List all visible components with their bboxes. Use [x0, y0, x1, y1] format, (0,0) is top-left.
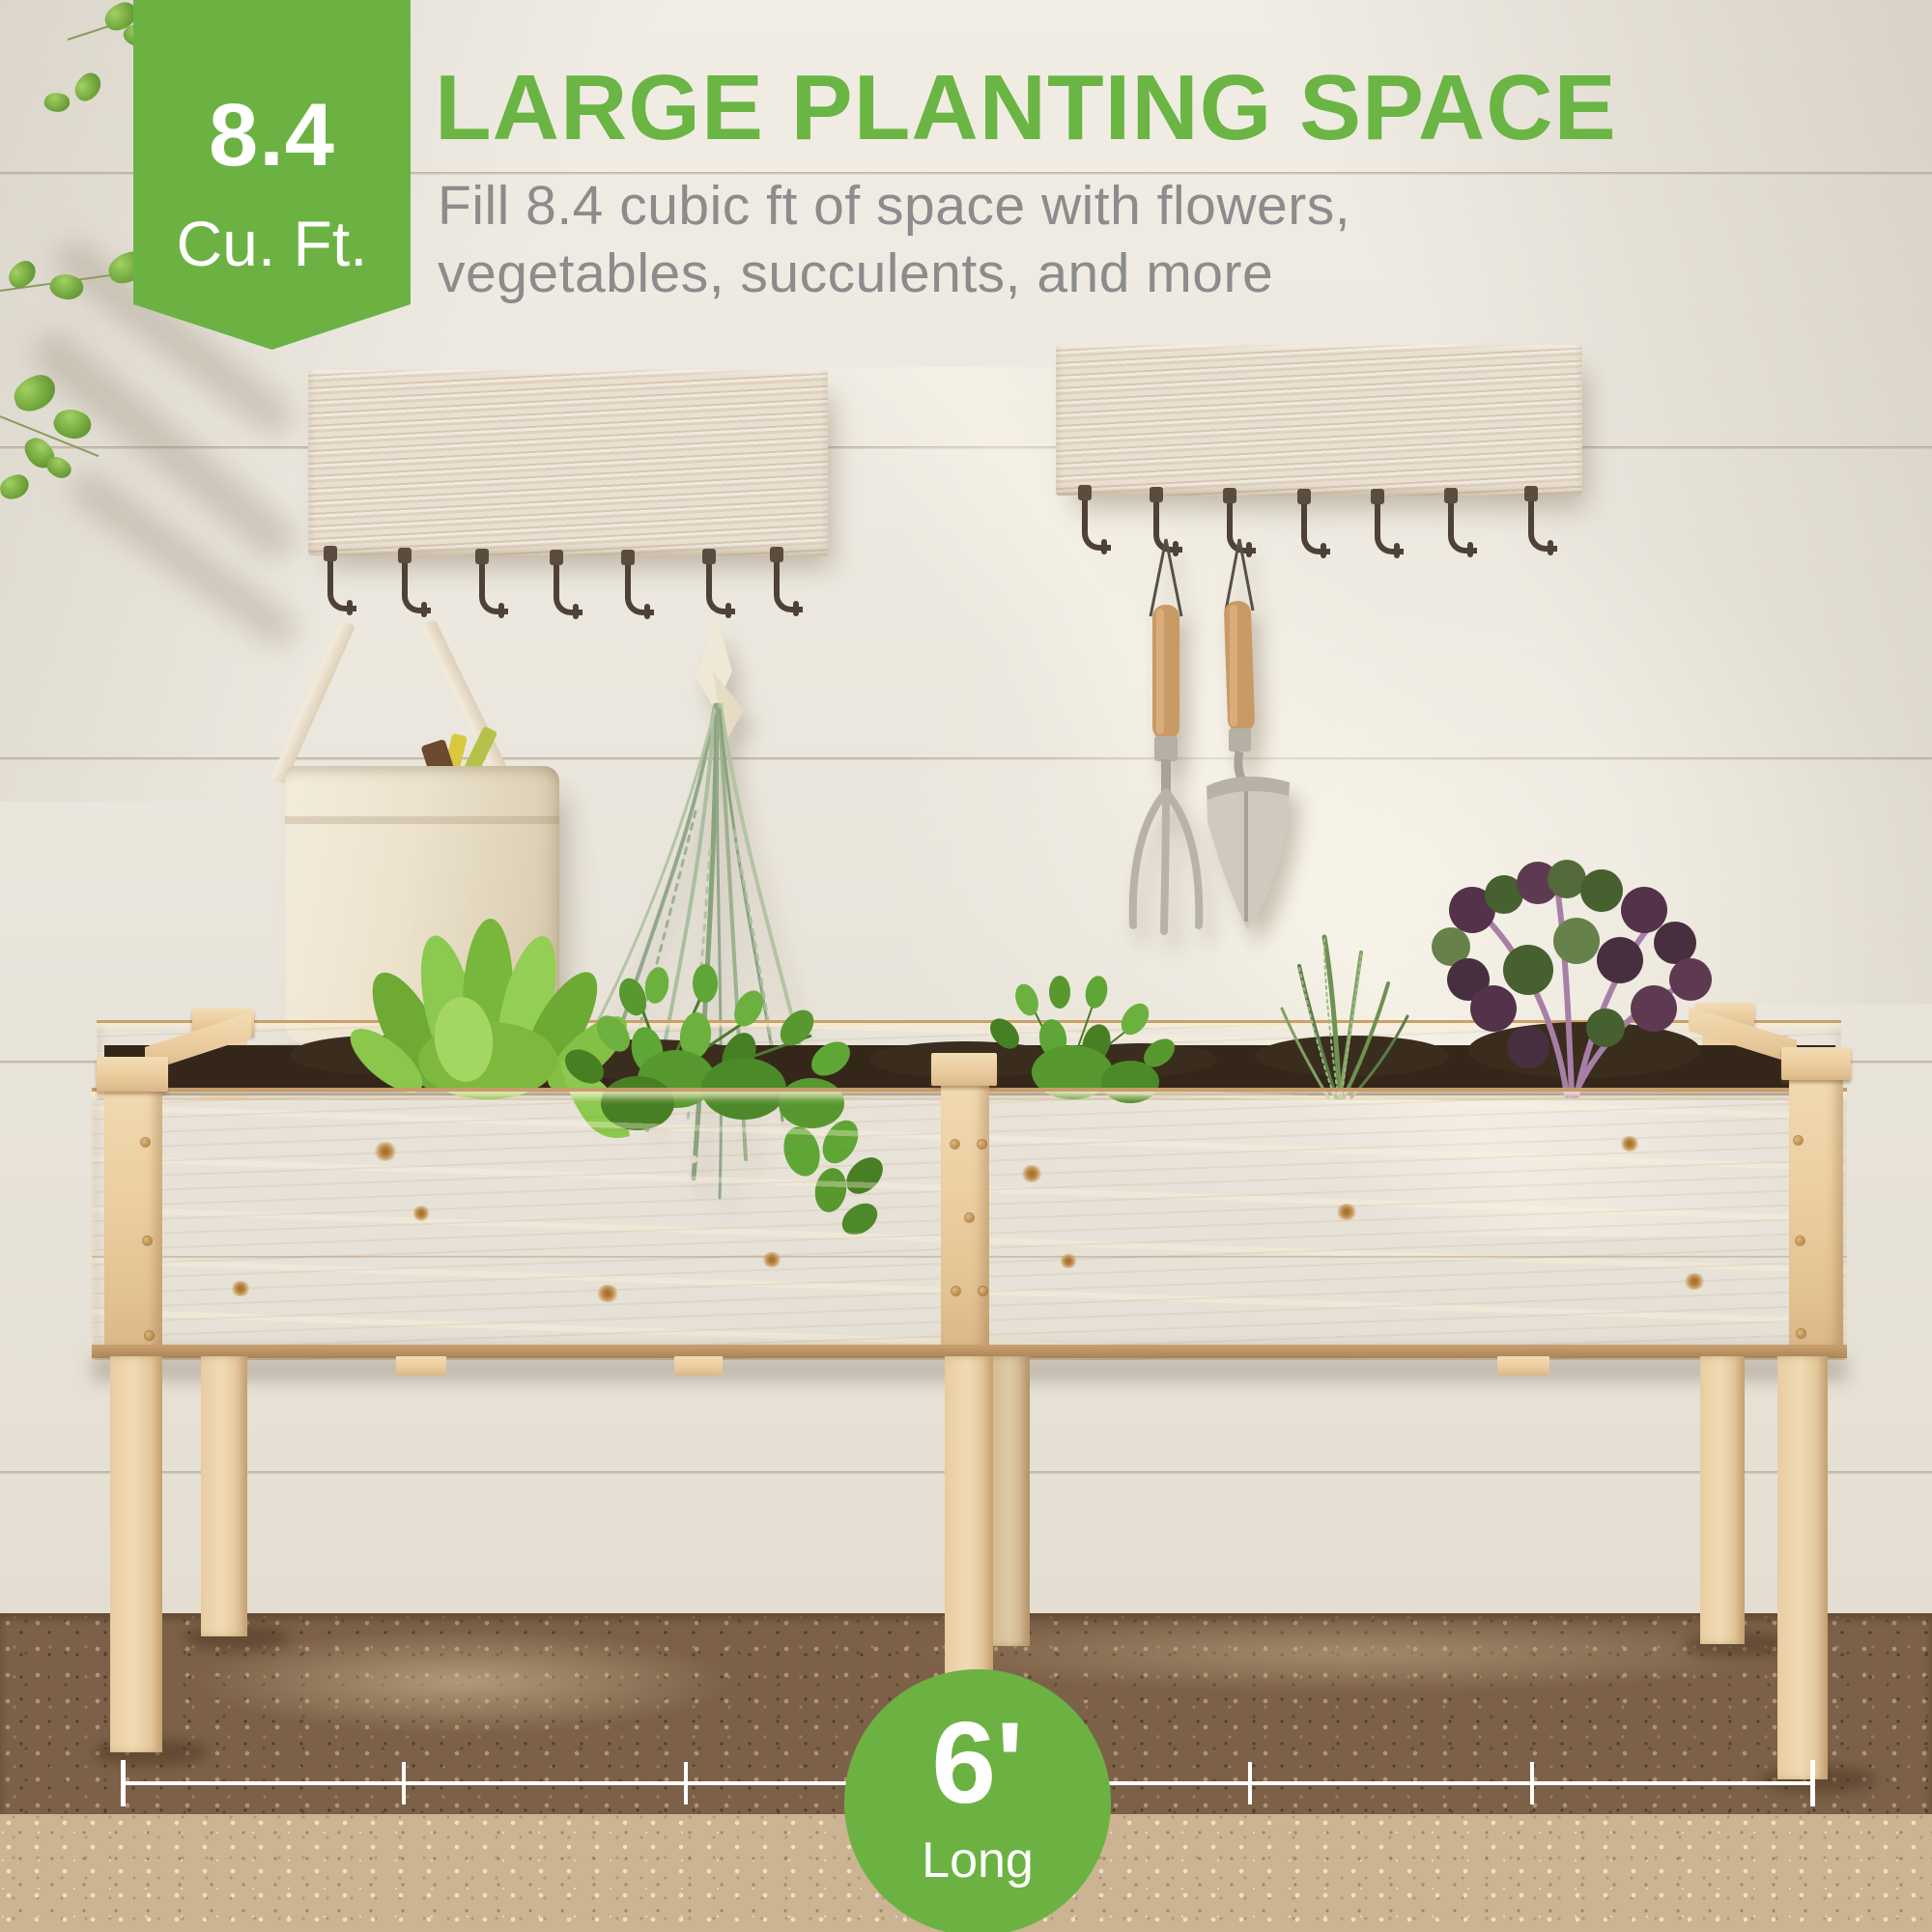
screw — [145, 1331, 154, 1340]
product-marketing-image: 8.4 Cu. Ft. LARGE PLANTING SPACE Fill 8.… — [0, 0, 1932, 1932]
screw — [1797, 1329, 1805, 1338]
planter-leg-front-left — [110, 1356, 162, 1752]
dimension-line-right — [1109, 1781, 1814, 1785]
planter-corner-post-cap-left — [97, 1057, 168, 1092]
wood-knot — [1020, 1165, 1043, 1182]
planter-middle-post — [941, 1055, 989, 1356]
screw — [979, 1287, 987, 1295]
planter-tab — [396, 1356, 446, 1376]
wood-knot — [1619, 1136, 1640, 1151]
subtitle-line-2: vegetables, succulents, and more — [438, 240, 1693, 307]
hook-icon — [327, 557, 356, 611]
wood-knot — [230, 1281, 251, 1296]
wood-knot — [595, 1285, 620, 1302]
planter-tab — [674, 1356, 723, 1376]
hook-icon — [774, 558, 803, 612]
screw — [143, 1236, 152, 1245]
screw — [1796, 1236, 1804, 1245]
hook-icon — [402, 559, 431, 613]
length-label: Long — [844, 1832, 1111, 1889]
screw — [1794, 1136, 1803, 1145]
dimension-tick — [684, 1762, 688, 1804]
wood-knot — [373, 1142, 398, 1161]
screw — [952, 1287, 960, 1295]
capacity-value: 8.4 — [133, 85, 411, 186]
screw — [965, 1213, 974, 1222]
headline: LARGE PLANTING SPACE — [435, 62, 1787, 155]
wood-knot — [1683, 1273, 1706, 1290]
purple-kale-plant — [1412, 854, 1741, 1110]
trowel-tool — [1193, 531, 1319, 947]
hook-icon — [1375, 500, 1404, 554]
capacity-unit: Cu. Ft. — [133, 207, 411, 280]
screw — [141, 1138, 150, 1147]
hook-icon — [1448, 499, 1477, 554]
hook-icon — [625, 561, 654, 615]
hook-icon — [479, 560, 508, 614]
dimension-tick — [1248, 1762, 1252, 1804]
wall-seam — [0, 446, 1932, 449]
hook-icon — [554, 561, 582, 615]
rosemary-plant — [1243, 923, 1436, 1107]
planter-leg-front-right — [1777, 1356, 1828, 1779]
wood-knot — [761, 1252, 782, 1267]
dimension-tick — [402, 1762, 406, 1804]
subtitle-line-1: Fill 8.4 cubic ft of space with flowers, — [438, 172, 1693, 240]
hook-icon — [706, 560, 735, 614]
capacity-badge: 8.4 Cu. Ft. — [133, 0, 411, 350]
planter-corner-post-right — [1789, 1049, 1843, 1356]
wall-hook-rack-right — [1056, 345, 1582, 496]
wood-knot — [1335, 1204, 1358, 1220]
wood-knot — [412, 1206, 431, 1221]
screw — [978, 1140, 986, 1149]
dimension-endcap-right — [1810, 1760, 1815, 1806]
planter-middle-post-cap — [931, 1053, 997, 1086]
planter-leg-back-middle — [993, 1356, 1030, 1646]
length-value: 6' — [844, 1696, 1111, 1830]
wall-hook-rack-left — [308, 370, 828, 555]
planter-corner-post-cap-right — [1781, 1047, 1851, 1080]
length-badge: 6' Long — [844, 1669, 1111, 1932]
planter-tab — [1497, 1356, 1549, 1376]
wood-knot — [1059, 1254, 1078, 1268]
hook-icon — [1528, 497, 1557, 552]
planter-leg-back-left — [201, 1356, 247, 1636]
hook-icon — [1082, 497, 1111, 551]
dimension-tick — [1530, 1762, 1534, 1804]
planter-corner-post-left — [104, 1059, 162, 1356]
dimension-line-left — [123, 1781, 847, 1785]
screw — [951, 1140, 959, 1149]
planter-leg-back-right — [1700, 1356, 1745, 1644]
